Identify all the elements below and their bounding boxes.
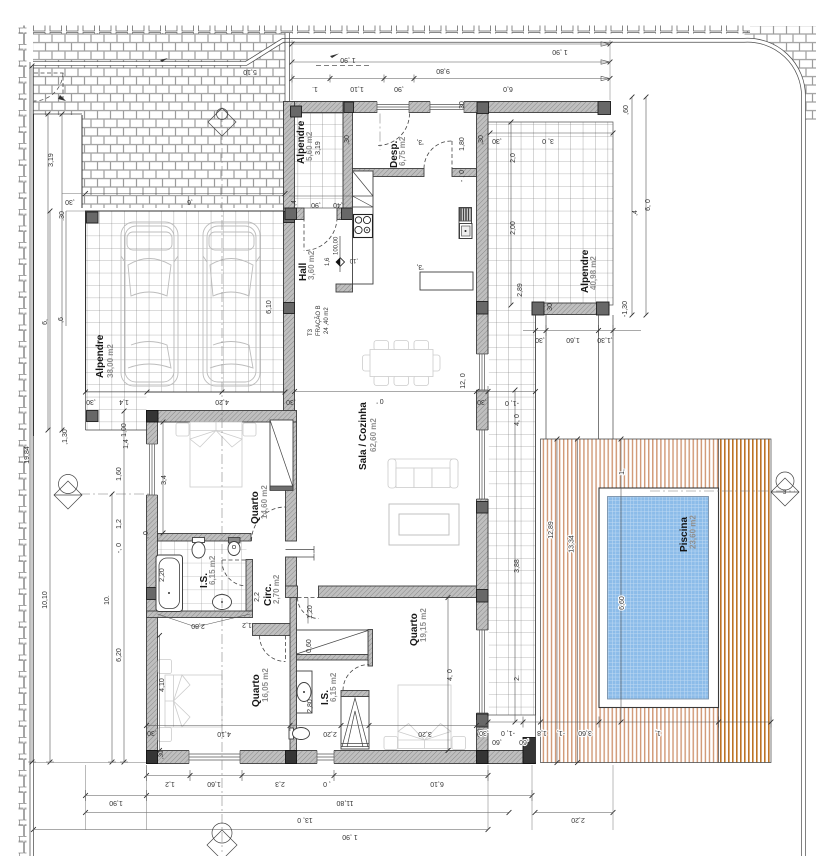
svg-text:2.: 2. (514, 675, 521, 681)
svg-text:40,98 m2: 40,98 m2 (589, 256, 598, 290)
svg-text:,40: ,40 (333, 201, 343, 208)
svg-text:4,20: 4,20 (215, 398, 229, 405)
svg-text:4, 0: 4, 0 (447, 669, 454, 681)
svg-text:,90: ,90 (394, 85, 404, 92)
svg-text:Sala / Cozinha: Sala / Cozinha (358, 402, 369, 470)
svg-text:10,10: 10,10 (42, 591, 49, 609)
svg-text:1,6: 1,6 (325, 257, 331, 266)
svg-text:11,80: 11,80 (336, 799, 353, 806)
svg-text:1,2: 1,2 (165, 780, 175, 787)
svg-text:.30: .30 (59, 211, 66, 221)
svg-text:-, 0: -, 0 (116, 543, 123, 553)
svg-text:2,3: 2,3 (275, 780, 285, 787)
svg-text:2,80: 2,80 (191, 622, 205, 629)
svg-text:3,60: 3,60 (578, 729, 592, 736)
svg-text:13,34: 13,34 (569, 535, 576, 553)
svg-text:1.: 1. (312, 85, 318, 92)
svg-text:2,20: 2,20 (571, 816, 585, 823)
svg-text:4,10: 4,10 (217, 730, 231, 737)
svg-text:12, 0: 12, 0 (460, 373, 467, 389)
svg-text:14,60 m2: 14,60 m2 (260, 485, 269, 519)
svg-text:1,60: 1,60 (207, 780, 221, 787)
svg-text:Alpendre: Alpendre (95, 334, 106, 378)
svg-text:12,89: 12,89 (548, 521, 555, 539)
svg-text:6,10: 6,10 (430, 780, 444, 787)
svg-text:1 ,90: 1 ,90 (340, 56, 356, 63)
svg-text:4,10: 4,10 (159, 678, 166, 692)
svg-text:1,: 1, (655, 729, 661, 736)
svg-text:,30: ,30 (535, 336, 545, 343)
svg-text:,30: ,30 (86, 398, 96, 405)
svg-text:,4: ,4 (632, 210, 639, 216)
svg-text:5,60 m2: 5,60 m2 (305, 131, 314, 161)
svg-text:,6: ,6 (187, 198, 193, 205)
svg-text:6,10: 6,10 (266, 300, 273, 314)
svg-text:- , 0: - , 0 (459, 170, 466, 182)
svg-text:3,20: 3,20 (418, 730, 432, 737)
svg-text:-1, 0: -1, 0 (505, 399, 519, 406)
svg-text:,90: ,90 (311, 201, 321, 208)
svg-text:1,2: 1,2 (242, 621, 252, 628)
svg-text:'3,: '3, (416, 138, 423, 145)
svg-text:4, 0: 4, 0 (514, 414, 521, 426)
svg-text:-1, 0: -1, 0 (501, 729, 515, 736)
svg-text:, 0: , 0 (143, 531, 150, 539)
svg-text:6,15 m2: 6,15 m2 (329, 672, 338, 702)
svg-text:1,2: 1,2 (116, 519, 123, 529)
svg-text:2,0: 2,0 (510, 153, 517, 163)
svg-text:1,80: 1,80 (459, 137, 466, 151)
svg-text:24 ,40 m2: 24 ,40 m2 (324, 307, 330, 334)
svg-text:1,00: 1,00 (121, 423, 128, 437)
svg-text:62,60 m2: 62,60 m2 (369, 418, 378, 452)
svg-text:1,60: 1,60 (116, 467, 123, 481)
svg-text:2,20: 2,20 (323, 730, 337, 737)
svg-text:2,89: 2,89 (517, 283, 524, 297)
svg-text:1,8: 1,8 (537, 729, 547, 736)
svg-text:2,00: 2,00 (510, 221, 517, 235)
svg-text:,30: ,30 (477, 398, 487, 405)
svg-text:2,20: 2,20 (159, 568, 166, 582)
svg-text:-1,30: -1,30 (622, 301, 629, 317)
svg-text:,60: ,60 (519, 738, 529, 745)
svg-text:1,90: 1,90 (109, 799, 123, 806)
svg-text:T3: T3 (308, 328, 314, 336)
svg-text:1,60: 1,60 (566, 336, 580, 343)
svg-text:16,05 m2: 16,05 m2 (261, 668, 270, 702)
svg-text:38,00 m2: 38,00 m2 (106, 344, 115, 378)
svg-text:,1,30: ,1,30 (597, 336, 613, 343)
svg-text:6,: 6, (42, 319, 49, 325)
svg-text:1,20: 1,20 (307, 605, 314, 619)
svg-text:FRAÇÃO B: FRAÇÃO B (315, 305, 322, 336)
svg-text:100,00: 100,00 (334, 236, 340, 255)
svg-text:19,84: 19,84 (24, 446, 31, 464)
svg-text:,1,30: ,1,30 (62, 429, 69, 445)
svg-text:,30: ,30 (479, 729, 489, 736)
svg-text:,30: ,30 (492, 137, 502, 144)
svg-text:0,60: 0,60 (306, 639, 313, 653)
svg-text:3,88: 3,88 (514, 559, 521, 573)
svg-text:,30: ,30 (344, 135, 351, 145)
svg-text:,10: ,10 (349, 257, 358, 263)
svg-text:,30: ,30 (159, 750, 165, 759)
svg-text:1 ,90: 1 ,90 (552, 48, 568, 55)
svg-text:13, 0: 13, 0 (297, 816, 313, 823)
svg-text:1,10: 1,10 (350, 85, 364, 92)
svg-text:, 0: , 0 (323, 780, 331, 787)
svg-text:,6: ,6 (58, 317, 65, 323)
svg-text:5,10: 5,10 (243, 68, 257, 75)
svg-text:30: 30 (547, 303, 554, 311)
svg-text:6,60: 6,60 (619, 596, 626, 610)
svg-text:6, 0: 6, 0 (645, 199, 652, 211)
svg-text:23,60 m2: 23,60 m2 (689, 515, 698, 549)
svg-text:1 ,90: 1 ,90 (342, 833, 358, 840)
svg-text:1,: 1, (619, 469, 626, 475)
svg-text:0 ': 0 ' (376, 397, 383, 404)
svg-text:1,4: 1,4 (119, 398, 129, 405)
svg-text:9,80: 9,80 (436, 67, 450, 74)
svg-text:,60: ,60 (492, 738, 502, 745)
svg-text:30: 30 (459, 101, 466, 109)
svg-text:6,0: 6,0 (503, 85, 513, 92)
svg-text:3,19: 3,19 (48, 153, 55, 167)
svg-text:,30: ,30 (147, 729, 157, 736)
svg-text:,60: ,60 (623, 105, 630, 115)
svg-text:,30: ,30 (478, 135, 485, 145)
svg-text:,4: ,4 (291, 200, 298, 206)
svg-text:-1,: -1, (557, 729, 565, 736)
svg-text:6,75 m2: 6,75 m2 (398, 136, 407, 166)
svg-text:'3,: '3, (416, 263, 423, 270)
svg-text:,30: ,30 (286, 398, 296, 405)
svg-text:3,19: 3,19 (315, 141, 322, 155)
svg-text:2,80: 2,80 (307, 699, 314, 713)
svg-text:6,20: 6,20 (116, 648, 123, 662)
svg-text:,30: ,30 (65, 198, 75, 205)
svg-text:19,15 m2: 19,15 m2 (419, 608, 428, 642)
svg-text:2,70 m2: 2,70 m2 (272, 574, 281, 604)
svg-text:10.: 10. (104, 595, 111, 605)
svg-text:6,15 m2: 6,15 m2 (208, 555, 217, 585)
svg-text:3, 0: 3, 0 (542, 137, 554, 144)
svg-text:2,2: 2,2 (254, 592, 261, 602)
svg-text:3,4: 3,4 (161, 475, 168, 485)
svg-text:3,60 m2: 3,60 m2 (307, 250, 316, 280)
